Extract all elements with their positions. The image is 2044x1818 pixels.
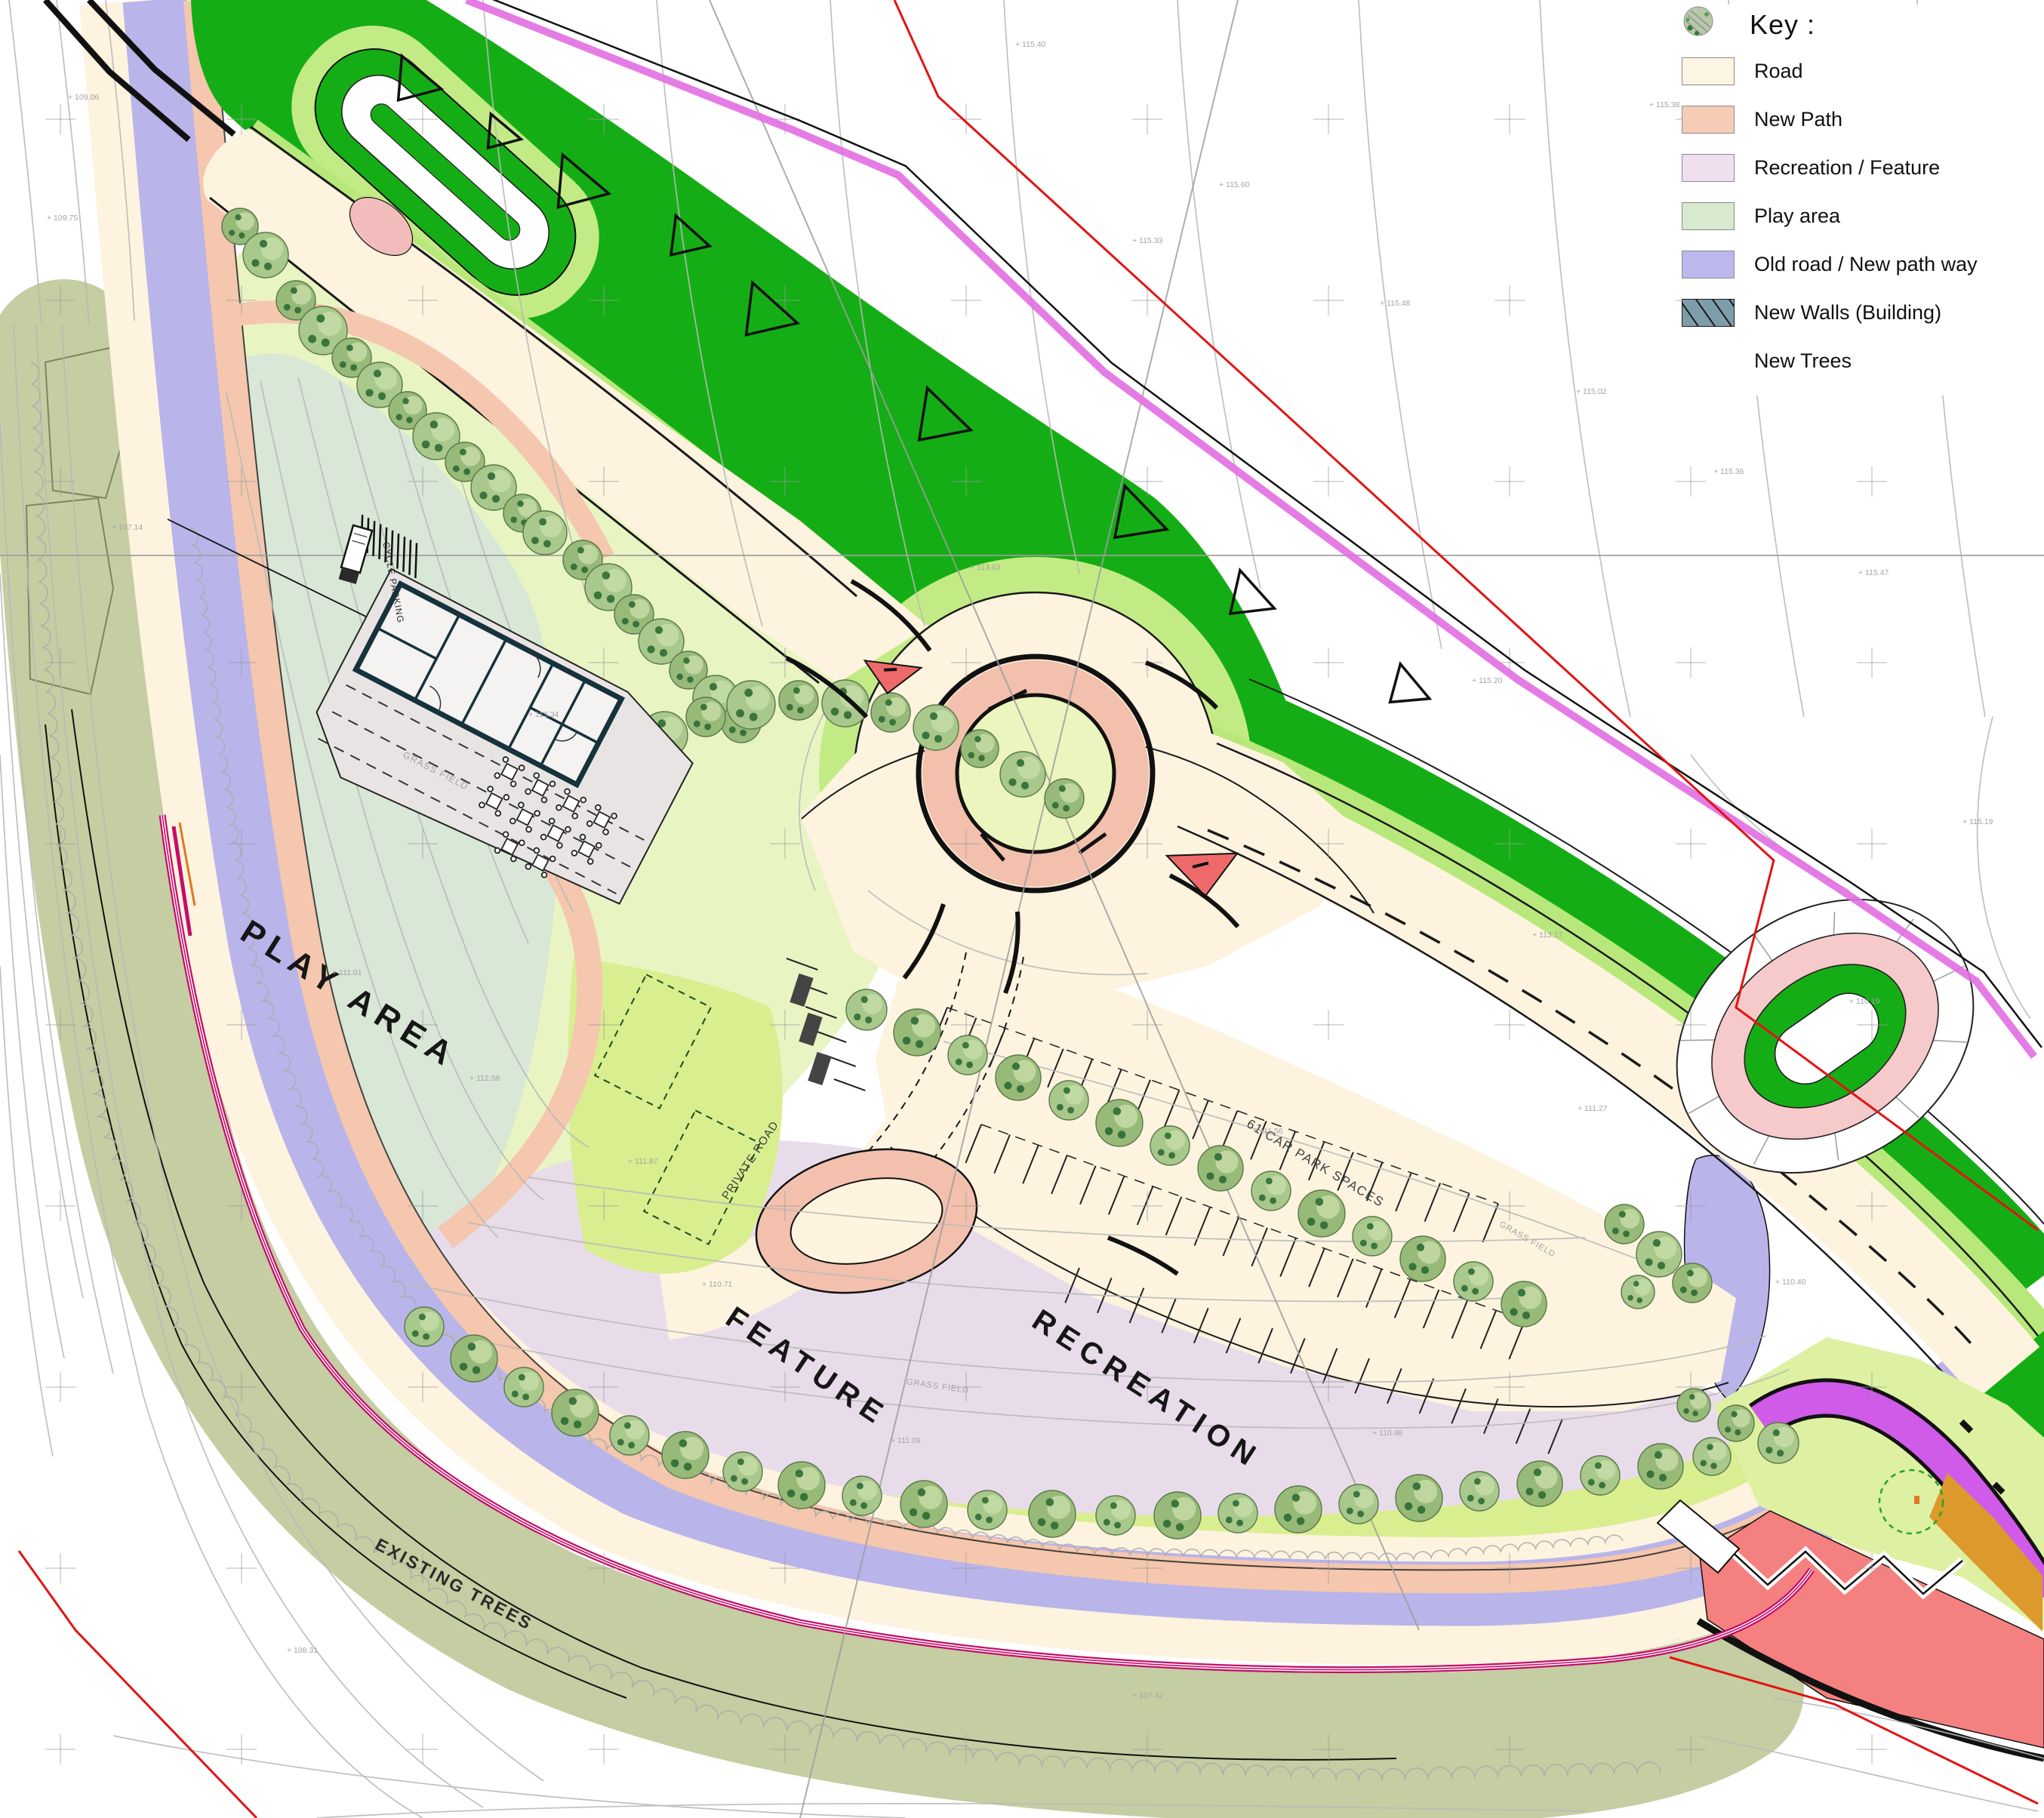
new-tree-symbol — [842, 1476, 882, 1515]
new-tree-symbol — [1029, 1490, 1076, 1537]
new-tree-symbol — [996, 1055, 1041, 1100]
spot-height: + 108.31 — [287, 1646, 318, 1655]
spot-height: + 115.48 — [1380, 299, 1411, 308]
new-tree-symbol — [723, 1452, 762, 1491]
new-tree-symbol — [1400, 1236, 1445, 1281]
new-tree-symbol — [822, 680, 869, 727]
new-tree-symbol — [1621, 1275, 1655, 1309]
spot-height: + 115.20 — [1472, 676, 1503, 685]
spot-height: + 110.71 — [702, 1280, 733, 1289]
spot-height: + 111.87 — [628, 1157, 658, 1166]
spot-height: + 110.19 — [1849, 997, 1880, 1006]
new-tree-symbol — [1677, 1389, 1710, 1422]
spot-height: + 115.33 — [1132, 236, 1163, 245]
new-tree-symbol — [1045, 779, 1084, 818]
site-plan-drawing: CYCLE PARKING GRASS FIELD — [0, 0, 2044, 1818]
new-tree-symbol — [1096, 1100, 1143, 1146]
new-tree-symbol — [662, 1432, 709, 1478]
new-tree-symbol — [1396, 1475, 1442, 1521]
new-tree-symbol — [900, 1481, 947, 1527]
new-tree-symbol — [1581, 1456, 1620, 1495]
legend-item-label: Road — [1754, 60, 1803, 83]
spot-height: + 112.58 — [469, 1074, 500, 1083]
spot-height: + 115.36 — [1713, 467, 1744, 476]
spot-height: + 115.40 — [1015, 40, 1046, 49]
new-tree-symbol — [1218, 1493, 1257, 1533]
legend-item: Play area — [1682, 202, 2039, 230]
new-tree-symbol — [1339, 1484, 1378, 1524]
legend-swatch — [1682, 57, 1735, 85]
spot-height: + 113.34 — [528, 710, 559, 719]
spot-height: + 115.47 — [1858, 568, 1889, 577]
spot-height: + 109.06 — [68, 93, 99, 102]
legend-item-label: Play area — [1754, 205, 1840, 228]
new-tree-symbol — [405, 1307, 444, 1346]
new-tree-symbol — [451, 1335, 497, 1382]
new-tree-symbol — [1758, 1423, 1799, 1463]
legend-swatch — [1682, 154, 1735, 182]
new-tree-symbol — [968, 1490, 1007, 1530]
new-trees-icon — [1682, 347, 1735, 375]
new-tree-symbol — [913, 705, 959, 750]
new-tree-symbol — [1154, 1492, 1201, 1539]
new-tree-symbol — [523, 511, 567, 555]
new-tree-symbol — [779, 681, 818, 720]
spot-height: + 113.63 — [970, 563, 1001, 572]
new-tree-symbol — [1251, 1171, 1291, 1210]
new-tree-symbol — [1000, 752, 1045, 797]
new-tree-symbol — [846, 989, 887, 1030]
spot-height: + 115.02 — [1576, 387, 1607, 396]
new-tree-symbol — [727, 681, 775, 729]
spot-height: + 110.40 — [1775, 1278, 1806, 1287]
legend-item: New Trees — [1682, 347, 2039, 375]
new-tree-symbol — [871, 693, 910, 732]
spot-height: + 111.27 — [1578, 1104, 1608, 1113]
legend-swatch — [1682, 106, 1735, 134]
spot-height: + 111.56 — [1253, 1127, 1283, 1136]
new-tree-symbol — [1275, 1486, 1322, 1533]
new-tree-symbol — [504, 1367, 543, 1407]
spot-height: + 115.60 — [1219, 180, 1250, 189]
new-tree-symbol — [894, 1009, 940, 1056]
legend-item: New Path — [1682, 106, 2039, 134]
new-tree-symbol — [1150, 1126, 1190, 1165]
new-tree-symbol — [1636, 1232, 1682, 1277]
new-tree-symbol — [610, 1416, 649, 1455]
new-tree-symbol — [778, 1462, 825, 1509]
new-tree-symbol — [948, 1035, 987, 1075]
spot-height: + 109.75 — [47, 214, 78, 223]
new-tree-symbol — [1198, 1146, 1243, 1191]
spot-height: + 115.38 — [1649, 100, 1680, 109]
new-tree-symbol — [686, 697, 725, 737]
new-tree-symbol — [1353, 1217, 1392, 1256]
legend-item: Old road / New path way — [1682, 251, 2039, 278]
new-tree-symbol — [552, 1389, 599, 1436]
new-tree-symbol — [1718, 1405, 1754, 1441]
spot-height: + 111.09 — [891, 1436, 921, 1445]
new-tree-symbol — [961, 730, 999, 767]
new-tree-symbol — [1673, 1263, 1712, 1303]
spot-height: + 111.01 — [332, 968, 362, 977]
new-tree-symbol — [1693, 1438, 1731, 1475]
new-tree-symbol — [243, 232, 288, 278]
legend-swatch — [1682, 202, 1735, 230]
new-tree-symbol — [1049, 1081, 1088, 1120]
legend-item: New Walls (Building) — [1682, 299, 2039, 327]
spot-height: + 115.19 — [1962, 817, 1993, 826]
new-tree-symbol — [1460, 1472, 1499, 1511]
new-tree-symbol — [1096, 1496, 1135, 1535]
legend-item: Recreation / Feature — [1682, 154, 2039, 182]
spot-height: + 107.14 — [112, 523, 143, 532]
legend-item-label: New Walls (Building) — [1754, 301, 1941, 325]
legend-item-label: Old road / New path way — [1754, 253, 1978, 276]
spot-height: + 107.42 — [1132, 1691, 1163, 1700]
legend-swatch — [1682, 251, 1735, 278]
legend-item-label: New Trees — [1754, 349, 1852, 373]
legend-item-label: New Path — [1754, 108, 1842, 131]
spot-height: + 110.98 — [1372, 1429, 1403, 1438]
new-tree-symbol — [1454, 1262, 1493, 1301]
spot-height: + 113.17 — [1532, 931, 1563, 940]
legend-item-label: Recreation / Feature — [1754, 156, 1940, 180]
new-tree-symbol — [1517, 1461, 1562, 1506]
legend-swatch — [1682, 299, 1735, 327]
legend: Key : RoadNew PathRecreation / FeaturePl… — [1682, 5, 2039, 395]
new-tree-symbol — [1298, 1190, 1345, 1237]
legend-item: Road — [1682, 57, 2039, 85]
legend-title: Key : — [1750, 9, 2039, 41]
new-tree-symbol — [1605, 1204, 1644, 1244]
new-tree-symbol — [1501, 1281, 1547, 1327]
new-tree-symbol — [1638, 1444, 1683, 1489]
